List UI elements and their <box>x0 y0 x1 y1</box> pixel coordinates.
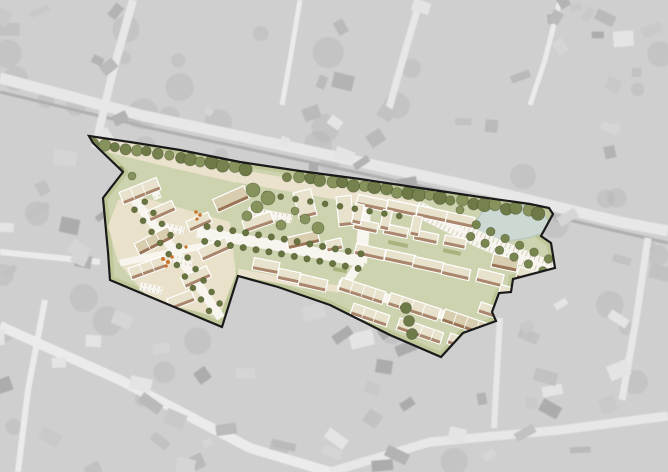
masterplan-aerial-map <box>0 0 668 472</box>
screenshot-root: { "canvas": {"w": 668, "h": 472}, "color… <box>0 0 668 472</box>
site-plan-svg <box>0 0 668 472</box>
